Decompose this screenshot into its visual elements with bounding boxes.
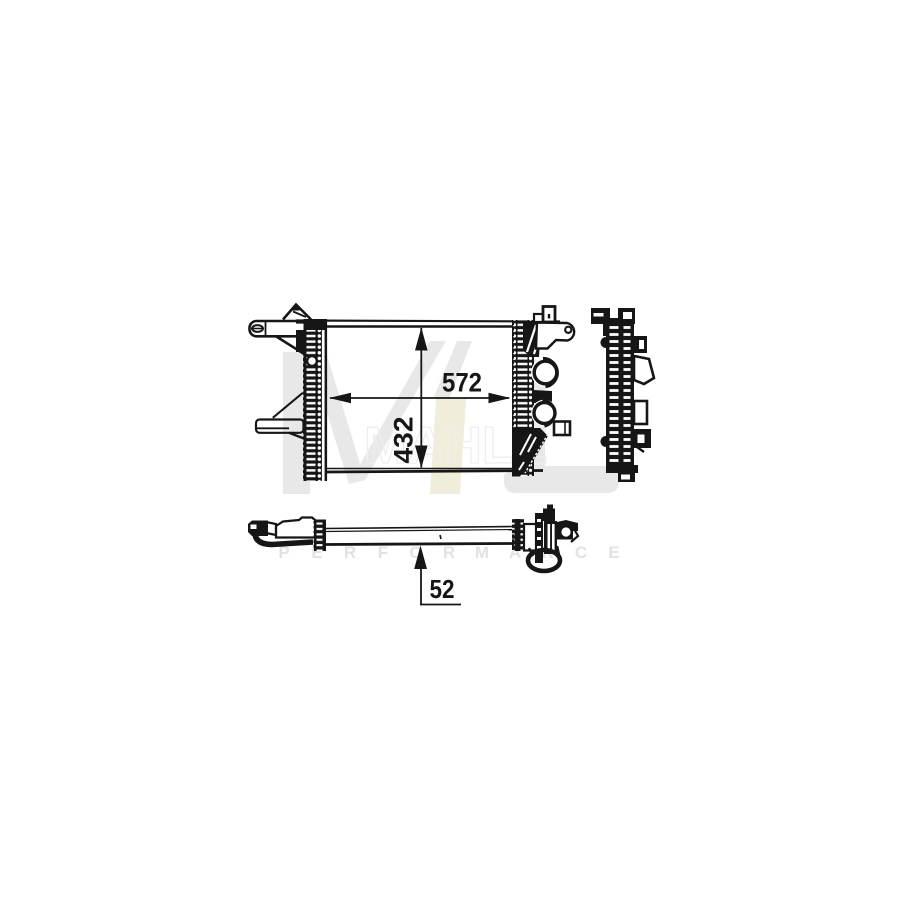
svg-text:R: R [344,543,356,562]
svg-text:52: 52 [430,574,455,604]
svg-text:572: 572 [442,368,482,398]
svg-text:C: C [575,543,587,562]
svg-text:432: 432 [389,417,419,464]
svg-text:M: M [475,543,489,562]
svg-text:F: F [378,543,388,562]
svg-text:E: E [608,543,619,562]
svg-text:R: R [443,543,455,562]
